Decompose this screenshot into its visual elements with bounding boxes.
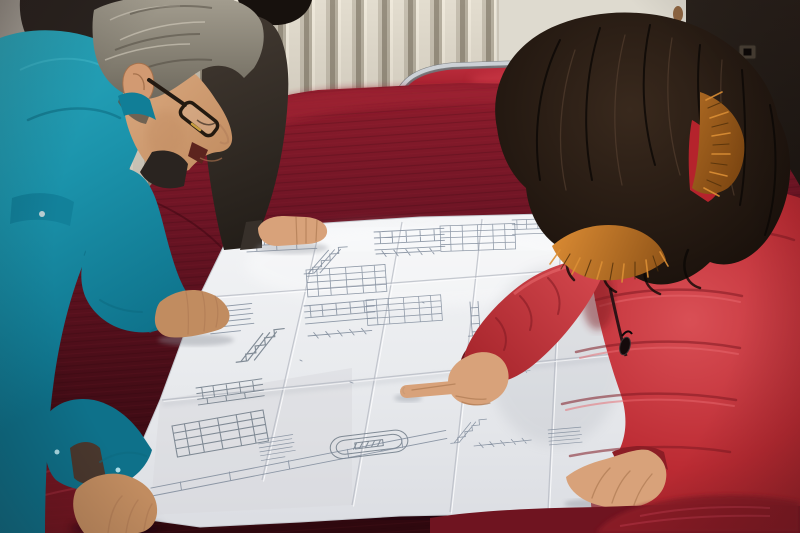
photo-recreation xyxy=(0,0,800,533)
scene-canvas xyxy=(0,0,800,533)
vignette xyxy=(0,0,800,533)
